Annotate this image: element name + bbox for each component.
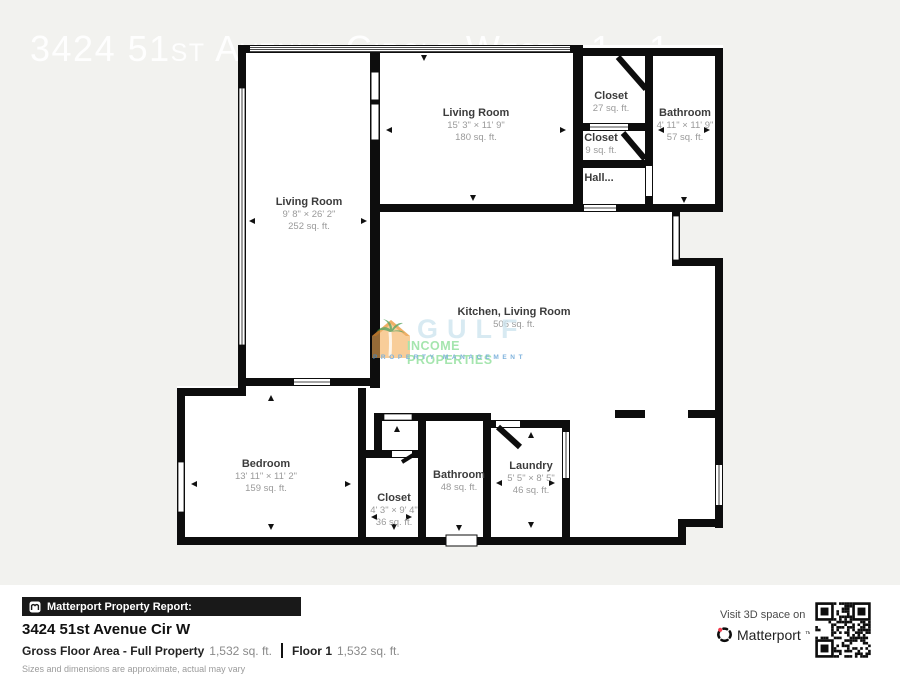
- room-label-kitchen-living: Kitchen, Living Room 506 sq. ft.: [457, 306, 570, 331]
- room-label-living-room-top: Living Room 15' 3" × 11' 9" 180 sq. ft.: [443, 107, 510, 144]
- matterport-brand-name: Matterport: [737, 627, 801, 643]
- qr-code-pattern: [810, 597, 876, 663]
- report-floor-area-line: Gross Floor Area - Full Property 1,532 s…: [22, 643, 400, 658]
- gross-floor-area-value: 1,532 sq. ft.: [209, 644, 272, 658]
- report-disclaimer: Sizes and dimensions are approximate, ac…: [22, 664, 400, 674]
- floor-1-value: 1,532 sq. ft.: [337, 644, 400, 658]
- room-label-bathroom-48: Bathroom 48 sq. ft.: [433, 469, 485, 494]
- report-header-bar: Matterport Property Report:: [22, 597, 301, 616]
- room-label-closet-36: Closet 4' 3" × 9' 4" 36 sq. ft.: [370, 492, 418, 529]
- room-label-hall: Hall...: [584, 172, 613, 185]
- matterport-brand-row: Matterport™: [716, 626, 812, 643]
- qr-code: [810, 597, 876, 663]
- gross-floor-area-label: Gross Floor Area - Full Property: [22, 644, 204, 658]
- room-label-closet-27: Closet 27 sq. ft.: [593, 90, 629, 115]
- matterport-report-block: Matterport Property Report: 3424 51st Av…: [22, 597, 400, 674]
- report-address: 3424 51st Avenue Cir W: [22, 621, 400, 638]
- floor-1-label: Floor 1: [292, 644, 332, 658]
- room-label-closet-9: Closet 9 sq. ft.: [584, 132, 618, 157]
- room-label-living-room-left: Living Room 9' 8" × 26' 2" 252 sq. ft.: [276, 196, 343, 233]
- matterport-logo-icon: [716, 626, 733, 643]
- room-label-laundry: Laundry 5' 5" × 8' 5" 46 sq. ft.: [507, 460, 555, 497]
- matterport-m-icon: [29, 601, 41, 613]
- room-label-bedroom: Bedroom 13' 11" × 11' 2" 159 sq. ft.: [235, 458, 297, 495]
- divider: [281, 643, 283, 658]
- property-report-page: 3424 51st Avenue Circle West - 1 - 1: [0, 0, 900, 675]
- report-bar-label: Matterport Property Report:: [47, 601, 192, 613]
- room-label-bathroom-top: Bathroom 4' 11" × 11' 9" 57 sq. ft.: [657, 107, 714, 144]
- visit-3d-space-label: Visit 3D space on: [720, 609, 805, 621]
